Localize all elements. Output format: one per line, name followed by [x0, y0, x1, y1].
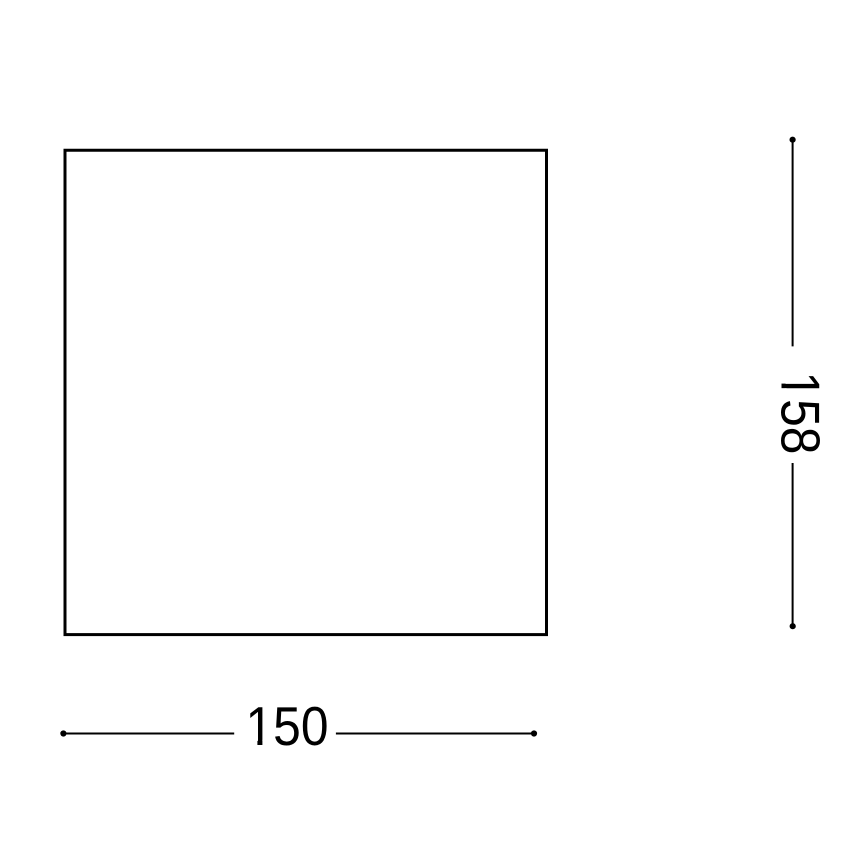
svg-text:150: 150	[246, 695, 329, 757]
svg-text:158: 158	[769, 371, 831, 454]
